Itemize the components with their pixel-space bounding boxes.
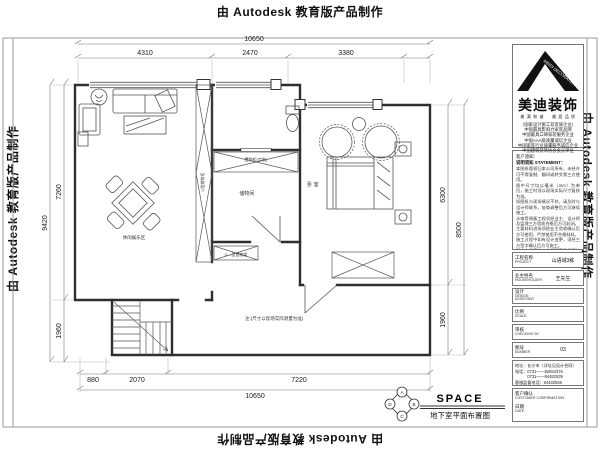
row-project: 工程名称 PROJECT 山语城3栋 bbox=[512, 252, 584, 268]
row-scale-en: SCALE bbox=[515, 315, 545, 319]
coffee-table bbox=[124, 116, 166, 134]
dim-right-total: 8500 bbox=[456, 222, 463, 238]
title-block: MEIDI DECORATION 美迪装饰 美 满 和 谐 美 居 品 质 （国… bbox=[512, 44, 584, 424]
brand-certs: （国家设计施工双资质企业） 中国最具影响力家装品牌 中国最具口碑家装服务企业 中… bbox=[515, 122, 581, 154]
statement-line: 施工过程中如有设计变更，须经三方签字确认后方可施工。 bbox=[516, 237, 580, 248]
armchair bbox=[79, 104, 100, 135]
dim-bottom-seg3: 7220 bbox=[291, 377, 307, 384]
compass-a: A bbox=[400, 390, 403, 395]
cert-line: 中国最具口碑家装服务企业 bbox=[515, 132, 581, 137]
drawing-title: SPACE 地下室平面布置图 bbox=[420, 393, 505, 420]
row-checking: 审核 CHECKING BY bbox=[512, 324, 584, 340]
floor-plan: 10650 4310 2470 3380 7260 9420 1960 6300… bbox=[0, 0, 600, 450]
meidi-roof-logo: MEIDI DECORATION bbox=[515, 47, 581, 93]
statement-line: 图中未尽事宜，参照国家现行建筑装饰装修工程施工及验收规范执行。 bbox=[516, 248, 580, 250]
round-side-table bbox=[353, 118, 366, 131]
row-project-value: 山语城3栋 bbox=[545, 257, 581, 264]
dim-left-lower: 1960 bbox=[56, 323, 63, 339]
label-storage-room: 储物间 bbox=[239, 190, 254, 197]
label-storage-strip: U型储物柜 bbox=[199, 173, 205, 192]
dim-top-total: 10650 bbox=[244, 36, 264, 43]
round-chair bbox=[91, 89, 107, 105]
nightstand-bottom bbox=[395, 210, 411, 224]
storage-cabinet bbox=[214, 152, 298, 172]
contact-box: 地址：长沙市（详址见设计合同） 电话：0731——82553376 0731——… bbox=[512, 360, 584, 386]
confirm-box: 客户确认 CUSTOMER CONFIRMATION 日期 DATE bbox=[512, 388, 584, 422]
brand-name: 美迪装饰 bbox=[515, 98, 581, 113]
statement-line: 水电等隐蔽工程须经业主、设计师及监理三方验收合格后方可封闭。 bbox=[516, 216, 580, 227]
statement-line: 本图纸版权归本公司所有，未经许可不得复制、翻印或转交第三方使用。 bbox=[516, 166, 580, 182]
label-rack: U—型置物架 bbox=[225, 251, 248, 257]
row-design-en: DESIGN ASSISTANT bbox=[515, 295, 545, 303]
brand-tagline: 美 满 和 谐 美 居 品 质 bbox=[515, 114, 581, 120]
sofa bbox=[113, 89, 177, 113]
statement-heading2: 说明须知 STATEMENT： bbox=[516, 160, 580, 166]
nightstand-top bbox=[395, 142, 411, 156]
dim-top-seg3: 3380 bbox=[338, 50, 354, 57]
contact-service-phone: 客服监督电话：84482556 bbox=[515, 380, 581, 386]
contact-address: 地址：长沙市（详址见设计合同） bbox=[515, 363, 581, 369]
row-householder-en: HOUSEHOLDER bbox=[515, 279, 545, 283]
statement-box: 客户须知： 说明须知 STATEMENT： 本图纸版权归本公司所有，未经许可不得… bbox=[512, 150, 584, 250]
bedroom-door bbox=[305, 285, 337, 313]
label-leisure: 休闲娱乐区 bbox=[123, 234, 146, 241]
storage-room-door bbox=[252, 216, 280, 242]
compass-b: B bbox=[412, 402, 415, 407]
mahjong-table bbox=[89, 159, 177, 247]
drawing-sheet: 由 Autodesk 教育版产品制作 由 Autodesk 教育版产品制作 由 … bbox=[0, 0, 600, 450]
row-householder: 业主姓名 HOUSEHOLDER 王先生 bbox=[512, 270, 584, 286]
date-en: DATE bbox=[515, 409, 581, 413]
label-note: 注:(尺寸以现场实际测量为准) bbox=[245, 315, 304, 322]
dim-bottom-total: 10650 bbox=[245, 393, 265, 400]
dim-right-lower: 1960 bbox=[440, 312, 447, 328]
row-checking-en: CHECKING BY bbox=[515, 333, 545, 337]
row-scale: 比例 SCALE bbox=[512, 306, 584, 322]
dim-top-seg2: 2470 bbox=[242, 50, 258, 57]
windows bbox=[89, 80, 382, 110]
dim-top-seg1: 4310 bbox=[137, 50, 153, 57]
drawing-title-caption: 地下室平面布置图 bbox=[430, 410, 490, 420]
room-labels: 休闲娱乐区 U型储物柜 置物柜(定制) 储物间 U—型置物架 卧 室 注:(尺寸… bbox=[123, 156, 319, 322]
bed bbox=[327, 157, 393, 209]
statement-line: 图中尺寸均以毫米（mm）为单位，施工时须以现场实际尺寸复核为准。 bbox=[516, 183, 580, 199]
row-number-value: 03 bbox=[545, 347, 581, 353]
row-design: 设计 DESIGN ASSISTANT bbox=[512, 288, 584, 304]
label-custom-cabinet: 置物柜(定制) bbox=[245, 156, 268, 162]
dim-bottom-seg1: 880 bbox=[87, 377, 99, 384]
drawing-title-space: SPACE bbox=[436, 393, 483, 405]
dim-left-inner: 7260 bbox=[56, 184, 63, 200]
stool-right bbox=[363, 124, 400, 161]
stairs bbox=[112, 300, 172, 355]
label-bedroom: 卧 室 bbox=[307, 181, 318, 188]
wardrobe bbox=[332, 252, 394, 278]
logo-box: MEIDI DECORATION 美迪装饰 美 满 和 谐 美 居 品 质 （国… bbox=[512, 44, 584, 148]
statement-line: 主要材料进场须经业主验收确认后方可使用，严禁使用不合格材料。 bbox=[516, 226, 580, 237]
row-number: 图号 NUMBER 03 bbox=[512, 342, 584, 358]
dim-right-inner: 6300 bbox=[440, 187, 447, 203]
compass: A B C D bbox=[385, 387, 419, 421]
cased-opening bbox=[240, 149, 272, 152]
dimension-labels: 10650 4310 2470 3380 7260 9420 1960 6300… bbox=[42, 36, 463, 400]
dim-bottom-seg2: 2070 bbox=[129, 377, 145, 384]
row-project-en: PROJECT bbox=[515, 261, 545, 265]
stool-left bbox=[320, 125, 355, 160]
confirm-en: CUSTOMER CONFIRMATION bbox=[515, 396, 581, 400]
dim-left-total: 9420 bbox=[42, 215, 49, 231]
row-number-en: NUMBER bbox=[515, 351, 545, 355]
row-householder-value: 王先生 bbox=[545, 275, 581, 282]
statement-line: 如图纸与现场情况不符，请及时与设计师联系，协商调整后方可继续施工。 bbox=[516, 199, 580, 215]
